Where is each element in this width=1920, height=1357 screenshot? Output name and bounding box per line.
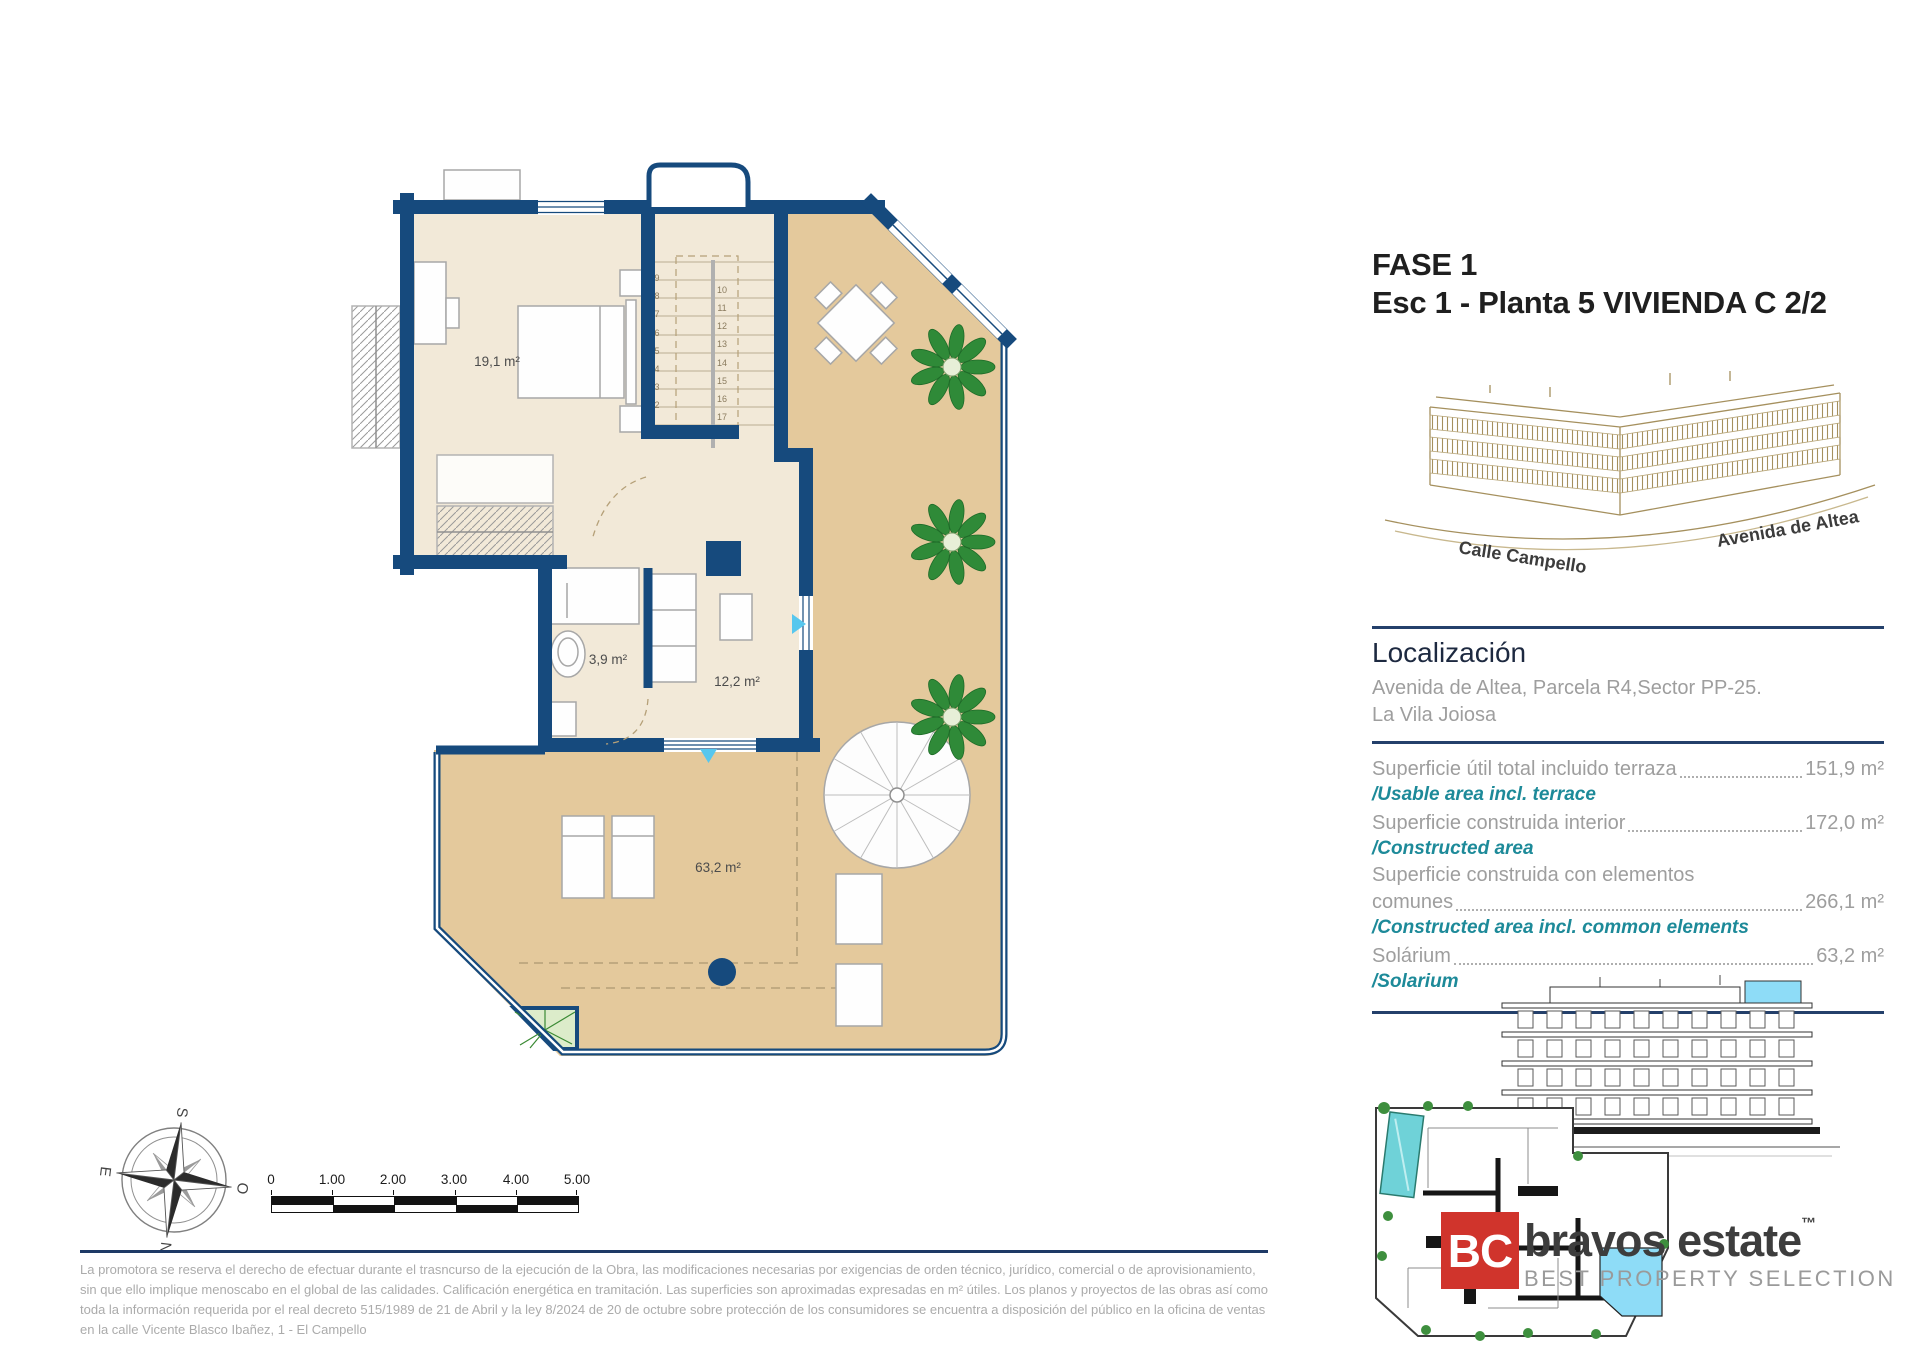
trademark-symbol: ™: [1801, 1215, 1816, 1232]
bc-logo-initials: BC: [1448, 1224, 1512, 1278]
scale-label: 0: [254, 1172, 288, 1187]
area-row: Superficie construida interior 172,0 m²: [1372, 810, 1884, 836]
svg-text:11: 11: [717, 303, 726, 313]
floor-plan: 9 8 7 6 5 4 3 2 10 11 12 13 14 15 16 17 …: [325, 150, 1020, 1080]
brand-name: bravos estate™: [1524, 1216, 1904, 1263]
dotted-leader: [1454, 963, 1813, 965]
footer-divider: [80, 1250, 1268, 1253]
bedroom-label: 19,1 m²: [474, 354, 520, 369]
svg-text:12: 12: [717, 321, 727, 331]
living-label: 12,2 m²: [714, 674, 760, 689]
title-line1: FASE 1: [1372, 246, 1892, 284]
parasol-icon: [824, 722, 970, 868]
svg-text:8: 8: [654, 291, 659, 301]
area-label-es: Superficie construida interior: [1372, 810, 1625, 836]
svg-text:9: 9: [654, 273, 659, 283]
side-table: [720, 594, 752, 640]
street-label-left: Calle Campello: [1457, 537, 1588, 577]
svg-text:13: 13: [717, 339, 727, 349]
compass-south-label: S: [173, 1106, 191, 1118]
area-value: 151,9 m²: [1805, 756, 1884, 782]
compass-cardinal-points: [109, 1115, 238, 1244]
compass-west-label: O: [233, 1182, 251, 1196]
svg-text:7: 7: [654, 309, 659, 319]
sun-lounger: [836, 874, 882, 944]
dotted-leader: [1680, 776, 1802, 778]
svg-text:6: 6: [654, 328, 659, 338]
scale-label: 3.00: [437, 1172, 471, 1187]
headboard: [626, 300, 636, 404]
svg-text:3: 3: [654, 382, 659, 392]
localization-city: La Vila Joiosa: [1372, 702, 1884, 729]
info-panel: Localización Avenida de Altea, Parcela R…: [1372, 626, 1884, 1014]
scale-label: 2.00: [376, 1172, 410, 1187]
localization-block: Localización Avenida de Altea, Parcela R…: [1372, 637, 1884, 741]
shower: [549, 568, 639, 624]
area-label-es: Superficie construida con elementos: [1372, 864, 1884, 887]
plan-sheet: 9 8 7 6 5 4 3 2 10 11 12 13 14 15 16 17 …: [0, 0, 1920, 1357]
svg-text:5: 5: [654, 346, 659, 356]
localization-address: Avenida de Altea, Parcela R4,Sector PP-2…: [1372, 675, 1884, 702]
compass-rose: O N E S: [92, 1098, 256, 1262]
area-value: 266,1 m²: [1805, 889, 1884, 915]
areas-block: Superficie útil total incluido terraza 1…: [1372, 744, 1884, 1011]
scale-bar-blocks: [271, 1196, 579, 1213]
sofa: [650, 574, 696, 682]
area-value: 172,0 m²: [1805, 810, 1884, 836]
highlighted-penthouse: [1745, 981, 1801, 1005]
sun-lounger: [836, 964, 882, 1026]
area-label-es: Solárium: [1372, 943, 1451, 969]
street-label-right: Avenida de Altea: [1715, 506, 1861, 551]
desk: [414, 262, 446, 344]
area-label-en: /Constructed area incl. common elements: [1372, 917, 1884, 939]
area-label-en: /Usable area incl. terrace: [1372, 784, 1884, 806]
compass-east-label: E: [96, 1166, 114, 1178]
scale-label: 5.00: [560, 1172, 594, 1187]
svg-text:15: 15: [717, 376, 727, 386]
antennas: [1600, 975, 1720, 987]
building-sketch: Calle Campello Avenida de Altea: [1370, 335, 1890, 605]
localization-heading: Localización: [1372, 637, 1884, 669]
legal-disclaimer: La promotora se reserva el derecho de ef…: [80, 1260, 1272, 1341]
sink: [550, 702, 576, 736]
column: [706, 541, 741, 576]
roof-unit: [444, 170, 520, 200]
bathroom-label: 3,9 m²: [589, 652, 628, 667]
column-dot: [708, 958, 736, 986]
page-title: FASE 1 Esc 1 - Planta 5 VIVIENDA C 2/2: [1372, 246, 1892, 322]
area-row: Solárium 63,2 m²: [1372, 943, 1884, 969]
roof-level: [1550, 987, 1740, 1003]
bc-logo-badge: BC: [1441, 1212, 1519, 1289]
sun-lounger: [562, 816, 604, 898]
svg-text:10: 10: [717, 285, 727, 295]
title-line2: Esc 1 - Planta 5 VIVIENDA C 2/2: [1372, 284, 1892, 322]
closet: [437, 455, 553, 503]
solarium-label: 63,2 m²: [695, 860, 741, 875]
scale-label: 4.00: [499, 1172, 533, 1187]
scale-bar: 0 1.00 2.00 3.00 4.00 5.00: [271, 1172, 577, 1218]
sun-lounger: [612, 816, 654, 898]
brand-tagline: BEST PROPERTY SELECTION: [1524, 1266, 1904, 1292]
svg-text:4: 4: [654, 364, 659, 374]
parapet: [649, 165, 748, 207]
desk-chair: [446, 298, 459, 328]
area-row: comunes 266,1 m²: [1372, 889, 1884, 915]
area-label-es: comunes: [1372, 889, 1453, 915]
brand-logo: bravos estate™ BEST PROPERTY SELECTION: [1524, 1216, 1904, 1292]
dotted-leader: [1628, 830, 1802, 832]
area-label-es: Superficie útil total incluido terraza: [1372, 756, 1677, 782]
area-row: Superficie útil total incluido terraza 1…: [1372, 756, 1884, 782]
svg-text:14: 14: [717, 358, 727, 368]
bed: [518, 306, 624, 398]
area-label-en: /Constructed area: [1372, 838, 1884, 860]
svg-text:2: 2: [654, 400, 659, 410]
scale-label: 1.00: [315, 1172, 349, 1187]
area-value: 63,2 m²: [1816, 943, 1884, 969]
brand-name-text: bravos estate: [1524, 1215, 1801, 1266]
svg-text:16: 16: [717, 394, 727, 404]
dotted-leader: [1456, 909, 1802, 911]
svg-text:17: 17: [717, 412, 727, 422]
divider: [1372, 626, 1884, 629]
